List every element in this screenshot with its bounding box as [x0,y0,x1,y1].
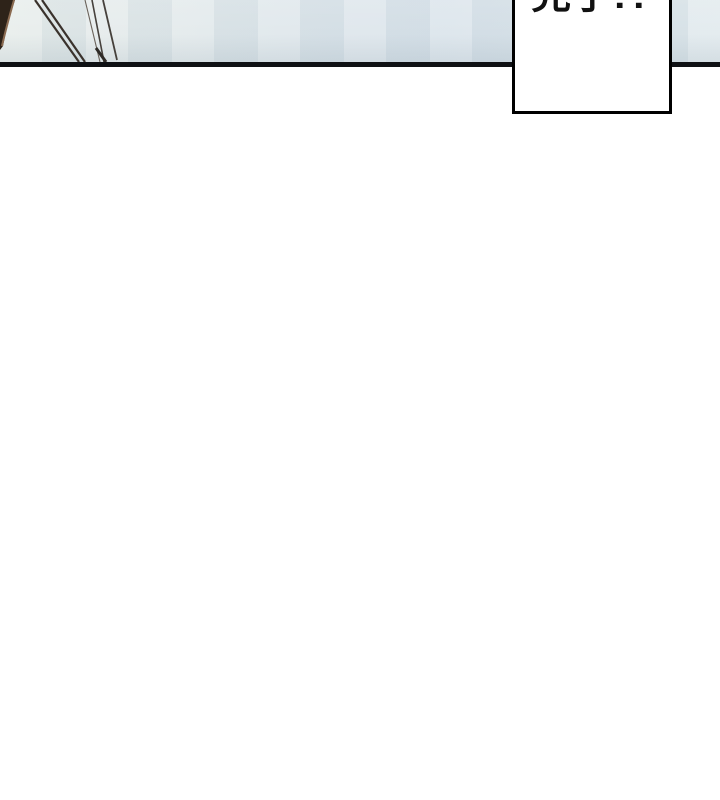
hair-strand-line [42,0,85,62]
speech-bubble: 完了!? [512,0,672,114]
hair-strand-line [35,0,79,62]
speech-bubble-text: 完了!? [515,0,669,15]
hair-strand-line [103,0,117,60]
webtoon-page: 完了!? [0,0,720,800]
